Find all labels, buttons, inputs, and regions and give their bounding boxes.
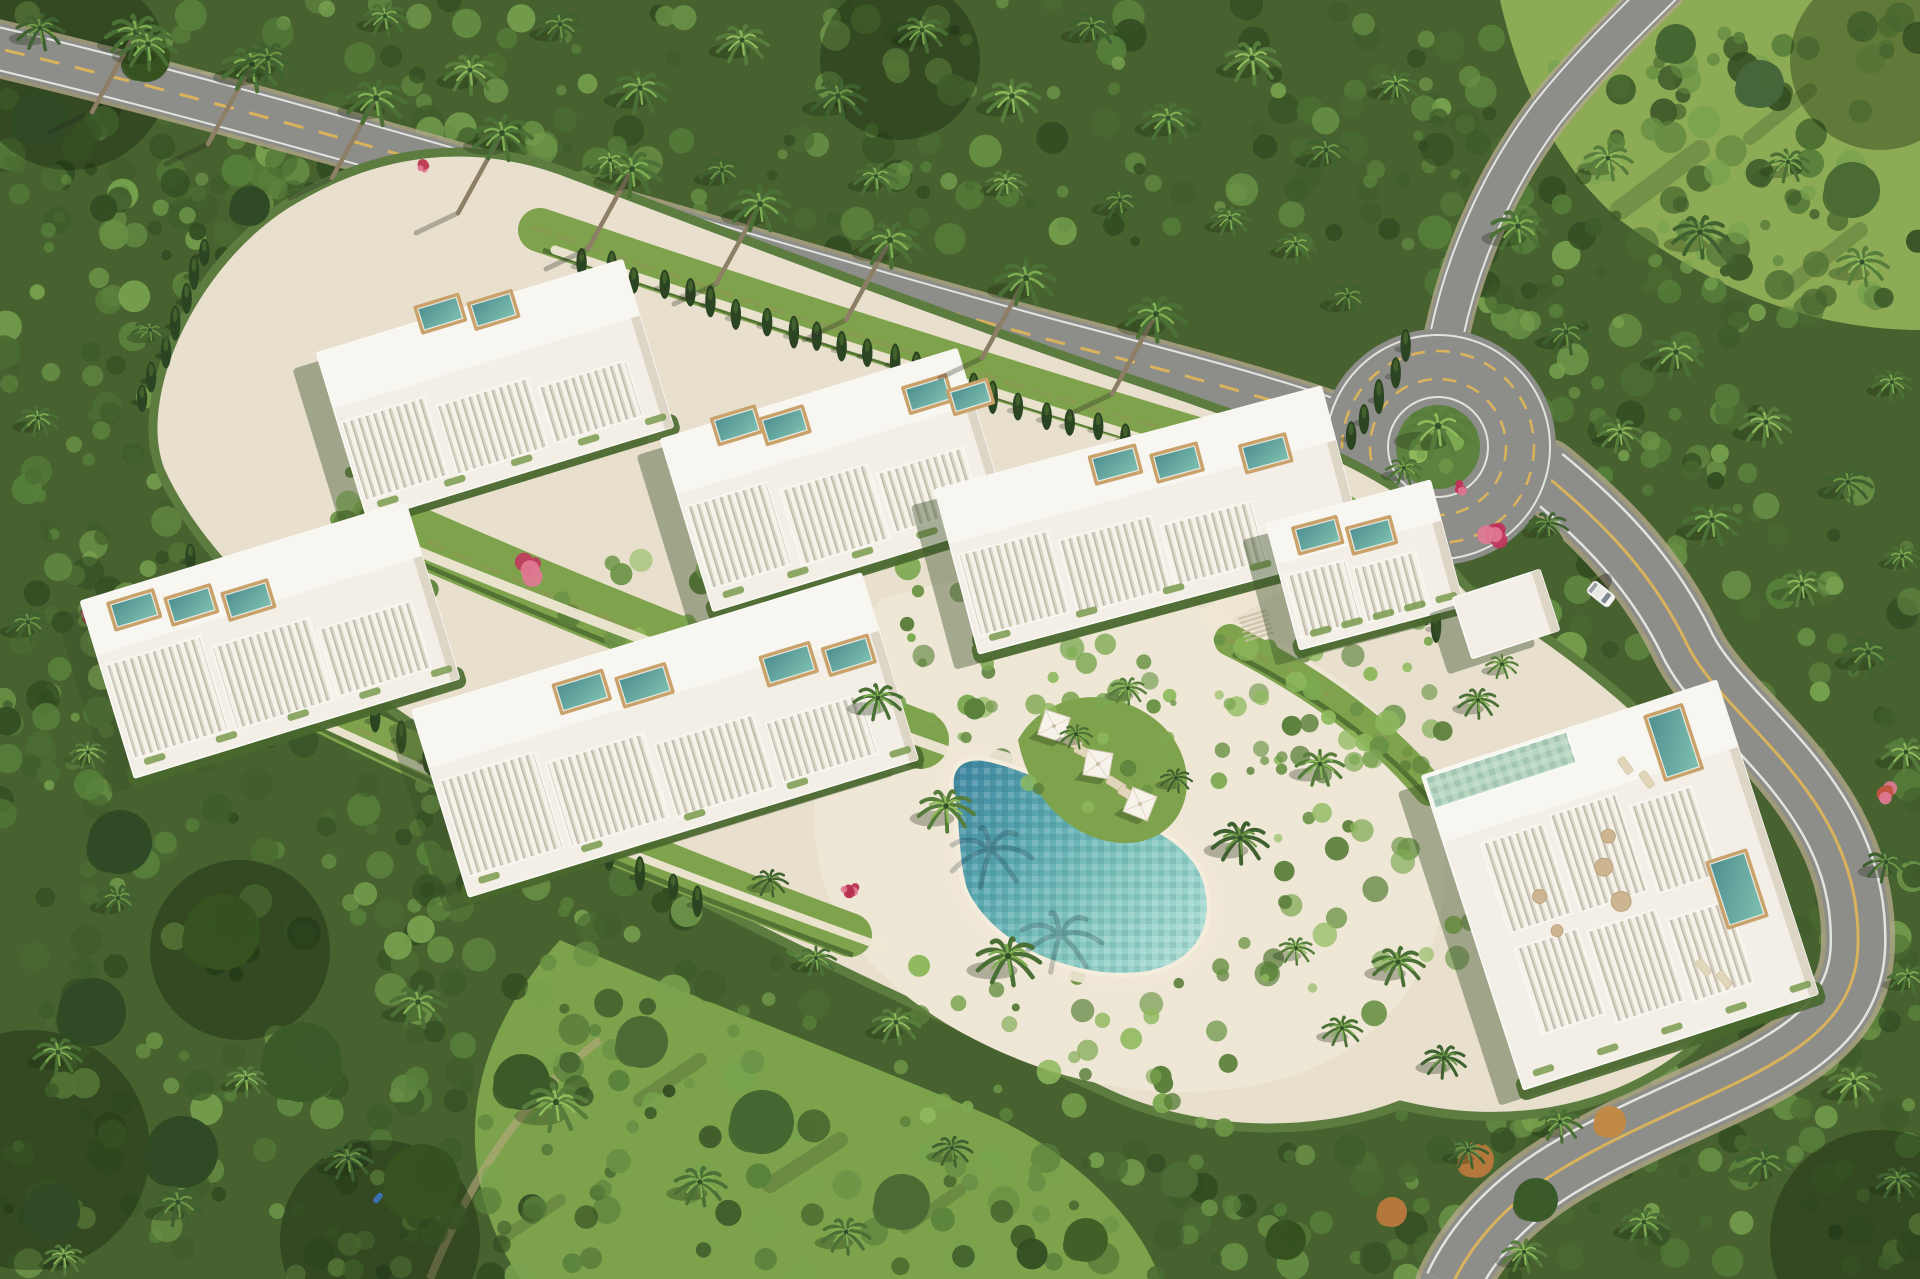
aerial-render-viewport [0,0,1920,1279]
resort-development-aerial-scene [0,0,1920,1279]
